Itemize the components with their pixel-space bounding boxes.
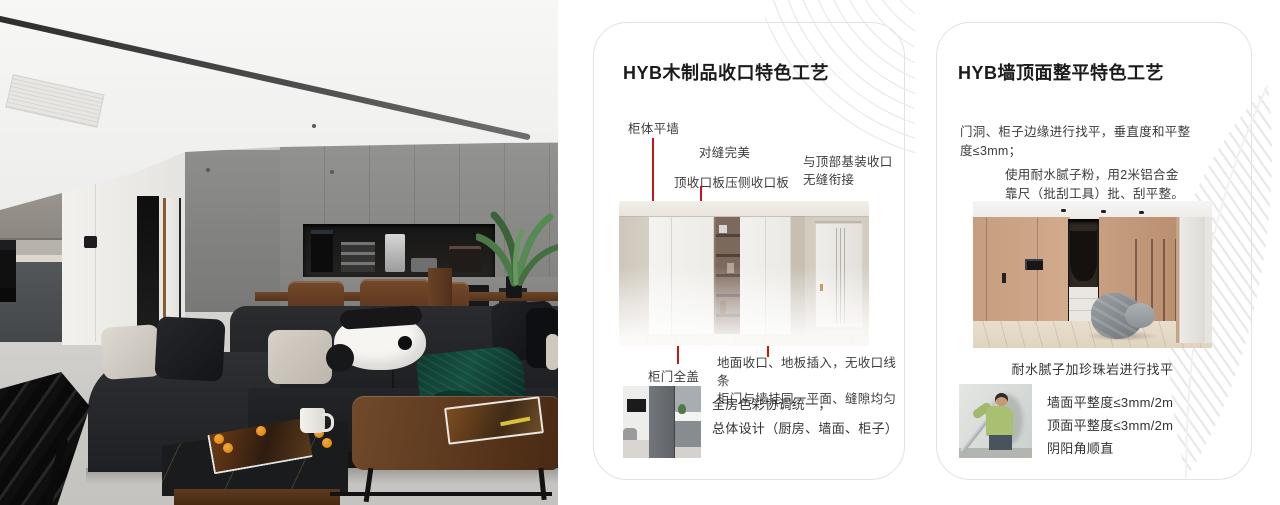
handle-groove [1163,239,1165,329]
built-in-coffee-machine [0,240,16,302]
footer-line2: 总体设计（厨房、墙面、柜子） [712,418,898,440]
kitchen-thumbnail-image [623,386,701,458]
plant [476,203,558,295]
spec-ceiling-flatness: 顶面平整度≤3mm/2m [1047,414,1173,437]
panda-arm [326,344,354,372]
image-caption: 耐水腻子加珍珠岩进行找平 [973,359,1212,378]
flatness-specs: 墙面平整度≤3mm/2m 顶面平整度≤3mm/2m 阴阳角顺直 [1047,391,1173,460]
orange-fruit [223,443,233,453]
annotation-top-join-line2: 无缝衔接 [803,171,893,189]
ceiling-spotlight [1101,210,1106,213]
lower-cabinet [675,421,701,447]
wood-door-wall [973,209,1070,325]
hanging-clothes [1070,231,1097,281]
annotation-floor-join-line1: 地面收口、地板插入，无收口线条 [717,354,904,390]
panda-plush [330,308,430,372]
footer-note: 全房色彩协调统一， 总体设计（厨房、墙面、柜子） [712,394,898,440]
cream-pillow [100,324,161,380]
downlight [330,170,334,174]
gray-pouf [1125,303,1155,328]
worker-torso [986,406,1013,436]
light-switch [84,236,97,248]
intercom-panel [1025,259,1043,270]
ceiling-sensor [312,124,316,128]
worker-head [995,393,1008,406]
annotation-cabinet-flat-wall: 柜体平墙 [628,118,679,137]
dark-doorway [137,196,159,342]
downlight [206,168,210,172]
gray-cabinet [649,386,675,458]
annotation-top-join-line1: 与顶部基装收口 [803,153,893,171]
gray-side-wall [185,150,281,312]
spec-wall-flatness: 墙面平整度≤3mm/2m [1047,391,1173,414]
floor [623,440,649,458]
worker-pants [989,435,1012,450]
worker-thumbnail-image [959,384,1032,458]
card-wood-finishing: HYB木制品收口特色工艺 柜体平墙 对缝完美 顶收口板压侧收口板 与顶部基装收口… [593,22,905,480]
light-wall [1205,207,1212,343]
paragraph-putty: 使用耐水腻子粉，用2米铝合金靠尺（批刮工具）批、刮平整。 [1005,166,1187,204]
orange-fruit [214,434,224,444]
spec-corners: 阴阳角顺直 [1047,437,1173,460]
cream-pillow [268,330,332,384]
card-title: HYB墙顶面整平特色工艺 [958,59,1164,85]
light-glare [619,201,869,346]
annotation-full-cover-door: 柜门全盖 [648,366,699,385]
card-title: HYB木制品收口特色工艺 [623,59,829,85]
annotation-perfect-seam: 对缝完美 [699,142,750,161]
orange-fruit [322,438,332,448]
living-room-photo [0,0,558,505]
wardrobe-render-image [619,201,869,346]
cup-rack [341,242,375,272]
table-crossbar [330,492,552,496]
annotation-top-closing-board: 顶收口板压侧收口板 [674,172,789,191]
table-wood-base [174,489,340,505]
coffee-appliance [311,230,333,272]
espresso-machine [385,234,405,272]
footer-line1: 全房色彩协调统一， [712,394,898,416]
floor [675,447,701,458]
door-handle [1002,273,1006,283]
ceiling-spotlight [1139,211,1144,214]
dining-chair [288,281,344,309]
black-pillow [154,316,225,381]
paragraph-door-edges: 门洞、柜子边缘进行找平，垂直度和平整度≤3mm； [960,123,1192,161]
card-wall-leveling: HYB墙顶面整平特色工艺 门洞、柜子边缘进行找平，垂直度和平整度≤3mm； 使用… [936,22,1252,480]
plant [678,404,686,414]
panda-eye [398,336,412,350]
annotation-top-join: 与顶部基装收口 无缝衔接 [803,153,893,189]
open-white-door [1179,207,1205,343]
page: HYB木制品收口特色工艺 柜体平墙 对缝完美 顶收口板压侧收口板 与顶部基装收口… [0,0,1280,505]
cream-pillow [546,334,558,370]
tv [627,399,646,412]
hallway-photo [973,201,1212,348]
orange-fruit [256,426,266,436]
ceiling-spotlight [1061,209,1066,212]
ceiling [973,201,1212,217]
coffee-niche [303,224,495,277]
